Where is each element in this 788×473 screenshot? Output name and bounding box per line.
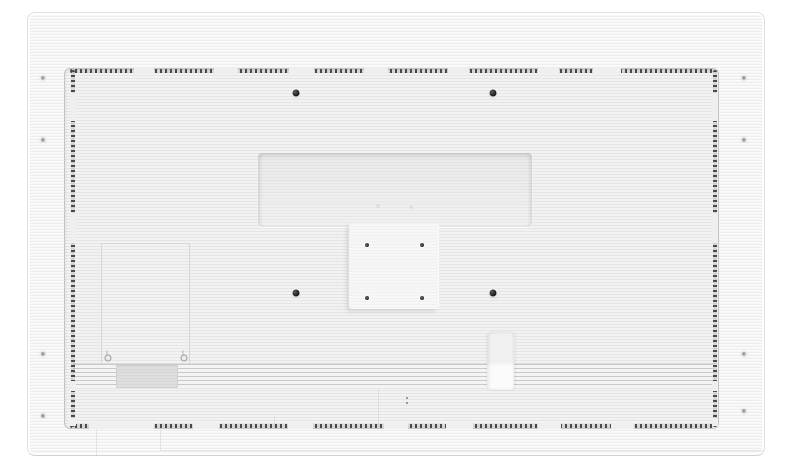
wall-mount-screw-hole bbox=[490, 290, 497, 297]
display-rear-body bbox=[27, 12, 765, 456]
product-photo bbox=[0, 0, 788, 473]
wall-mount-screw-hole bbox=[490, 90, 497, 97]
pinhole bbox=[406, 397, 408, 399]
vesa-screw-hole bbox=[420, 296, 424, 300]
bezel-screw bbox=[41, 414, 45, 418]
recess-mark bbox=[376, 204, 380, 208]
bezel-screw bbox=[41, 352, 45, 356]
bezel-screw bbox=[41, 138, 45, 142]
wall-mount-screw-hole bbox=[293, 290, 300, 297]
bezel-screw bbox=[742, 352, 746, 356]
service-panel-screw bbox=[181, 355, 188, 362]
wall-mount-screw-hole bbox=[293, 90, 300, 97]
bezel-screw bbox=[742, 76, 746, 80]
vesa-screw-hole bbox=[365, 243, 369, 247]
vesa-screw-hole bbox=[420, 243, 424, 247]
service-panel-screw bbox=[105, 355, 112, 362]
recess-mark bbox=[409, 205, 413, 209]
bezel-screw bbox=[742, 409, 746, 413]
vesa-screw-hole bbox=[365, 296, 369, 300]
screw-layer bbox=[28, 13, 764, 455]
bezel-screw bbox=[41, 76, 45, 80]
pinhole bbox=[406, 402, 408, 404]
bezel-screw bbox=[742, 138, 746, 142]
